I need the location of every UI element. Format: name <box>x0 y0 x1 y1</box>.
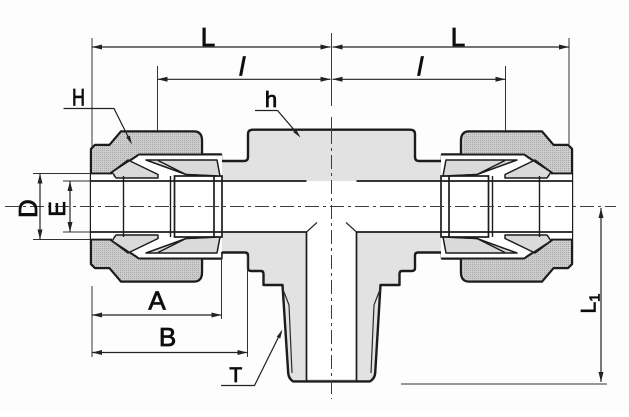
svg-text:D: D <box>13 199 43 218</box>
svg-text:B: B <box>159 322 176 352</box>
svg-text:L: L <box>201 22 215 52</box>
svg-text:E: E <box>44 201 70 216</box>
svg-text:h: h <box>265 87 277 112</box>
svg-text:T: T <box>229 364 242 387</box>
svg-text:H: H <box>72 85 85 112</box>
svg-text:L: L <box>451 22 465 52</box>
svg-text:A: A <box>148 286 166 316</box>
